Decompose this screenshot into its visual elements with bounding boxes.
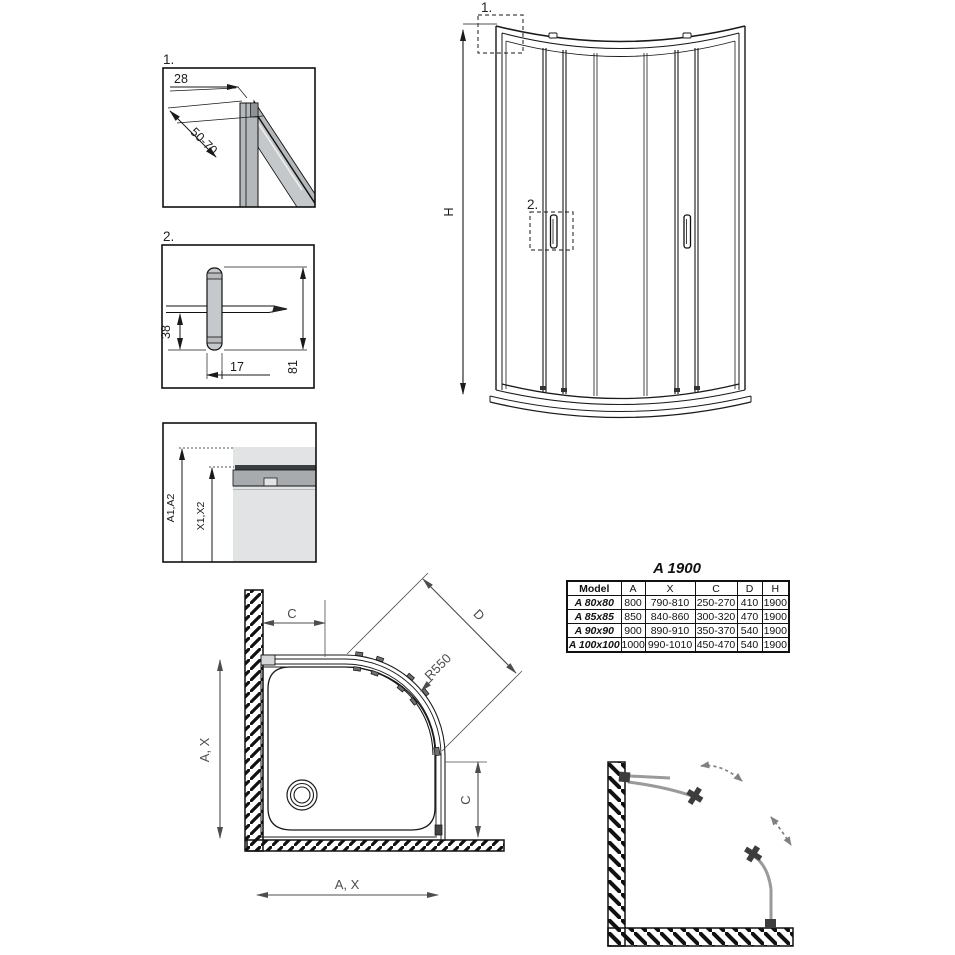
cell-c: 250-270 [695, 596, 737, 610]
cell-c: 450-470 [695, 638, 737, 653]
glass-section [166, 306, 287, 313]
cell-x: 790-810 [645, 596, 695, 610]
schematic-wall-bottom [608, 928, 793, 946]
sliding-door-bottom [741, 842, 776, 928]
detail-2-label: 2. [163, 229, 174, 244]
elevation-callout-2: 2. [527, 197, 538, 212]
tray-outer-edge [261, 658, 435, 837]
cell-model: A 90x90 [567, 624, 621, 638]
door-bottom-bracket [435, 825, 442, 835]
plan-wall-bottom [247, 840, 504, 851]
plan-dim-c-right: C [458, 795, 473, 804]
cell-a: 800 [621, 596, 645, 610]
cell-h: 1900 [762, 624, 789, 638]
col-header-a: A [621, 581, 645, 596]
sliding-door-top [619, 772, 707, 808]
slide-direction-arrow-top [701, 766, 742, 781]
dim-50-70-text: 50-70 [188, 125, 221, 158]
plan-dim-radius: R550 [422, 651, 455, 684]
col-header-d: D [737, 581, 762, 596]
cell-model: A 85x85 [567, 610, 621, 624]
wall-fixing-top [619, 772, 631, 783]
detail-3-drawing: A1,A2 X1,X2 [150, 413, 365, 568]
enclosure-outline [490, 26, 751, 418]
cell-d: 410 [737, 596, 762, 610]
bottom-rollers [540, 386, 700, 392]
cell-model: A 80x80 [567, 596, 621, 610]
cell-d: 540 [737, 638, 762, 653]
dim-x1x2-text: X1,X2 [195, 502, 207, 531]
cell-c: 300-320 [695, 610, 737, 624]
door-handle-marker-top [683, 784, 707, 808]
cell-model: A 100x100 [567, 638, 621, 653]
col-header-h: H [762, 581, 789, 596]
dim-38-text: 38 [159, 325, 173, 339]
cell-a: 900 [621, 624, 645, 638]
detail-3-dim-inner: X1,X2 [195, 467, 234, 562]
door-swing-schematic [595, 750, 885, 955]
detail-2-drawing: 2. 38 17 [150, 225, 365, 395]
door-handle-left [551, 215, 558, 248]
technical-drawing-sheet: 1. 28 50-70 [0, 0, 955, 955]
elevation-callout-1: 1. [481, 0, 492, 15]
wall-fixing-bottom [765, 919, 776, 928]
door-handle-right [684, 215, 691, 248]
dim-17-text: 17 [230, 360, 244, 374]
cell-x: 840-860 [645, 610, 695, 624]
spec-table-block: A 1900 Model A X C D H A 80x80 800 790-8… [566, 560, 788, 653]
spec-table: Model A X C D H A 80x80 800 790-810 250-… [566, 580, 790, 653]
detail-2-dim-17: 17 [207, 353, 270, 379]
detail-2-dim-81: 81 [224, 267, 307, 374]
detail-1-dim-28: 28 [170, 72, 247, 98]
handle-section [207, 268, 222, 350]
table-row: A 90x90 900 890-910 350-370 540 1900 [567, 624, 789, 638]
col-header-c: C [695, 581, 737, 596]
dim-81-text: 81 [286, 360, 300, 374]
plan-dim-d: D [471, 606, 488, 623]
cell-h: 1900 [762, 596, 789, 610]
table-header-row: Model A X C D H [567, 581, 789, 596]
col-header-x: X [645, 581, 695, 596]
dim-h-text: H [442, 207, 456, 216]
drain [287, 780, 317, 810]
table-row: A 80x80 800 790-810 250-270 410 1900 [567, 596, 789, 610]
plan-dim-c-top: C [287, 606, 296, 621]
top-roller-left [549, 33, 557, 38]
cell-x: 990-1010 [645, 638, 695, 653]
elevation-view: H 1. 2. [440, 0, 780, 430]
detail-3-profile-section [233, 447, 316, 562]
slide-direction-arrow-bottom [771, 817, 791, 845]
table-row: A 85x85 850 840-860 300-320 470 1900 [567, 610, 789, 624]
dim-28-text: 28 [174, 72, 188, 86]
spec-table-title: A 1900 [566, 560, 788, 577]
cell-d: 470 [737, 610, 762, 624]
cell-a: 1000 [621, 638, 645, 653]
top-roller-right [683, 33, 691, 38]
wall-bracket [261, 655, 275, 665]
cell-h: 1900 [762, 638, 789, 653]
cell-x: 890-910 [645, 624, 695, 638]
callout-1-box [478, 15, 523, 53]
plan-wall-left [245, 590, 263, 851]
schematic-wall-left [608, 762, 625, 946]
cell-h: 1900 [762, 610, 789, 624]
plan-view: C A, X A, X C D R550 [195, 560, 530, 910]
elevation-dim-height: H [442, 24, 497, 394]
col-header-model: Model [567, 581, 621, 596]
plan-dim-ax-bottom: A, X [335, 877, 360, 892]
cell-d: 540 [737, 624, 762, 638]
plan-dim-ax-left: A, X [197, 737, 212, 762]
table-row: A 100x100 1000 990-1010 450-470 540 1900 [567, 638, 789, 653]
detail-1-drawing: 1. 28 50-70 [150, 45, 365, 215]
dim-a1a2-text: A1,A2 [165, 494, 177, 523]
cell-c: 350-370 [695, 624, 737, 638]
cell-a: 850 [621, 610, 645, 624]
detail-2-dim-38: 38 [159, 314, 206, 350]
curved-track [263, 655, 445, 841]
detail-1-label: 1. [163, 52, 174, 67]
